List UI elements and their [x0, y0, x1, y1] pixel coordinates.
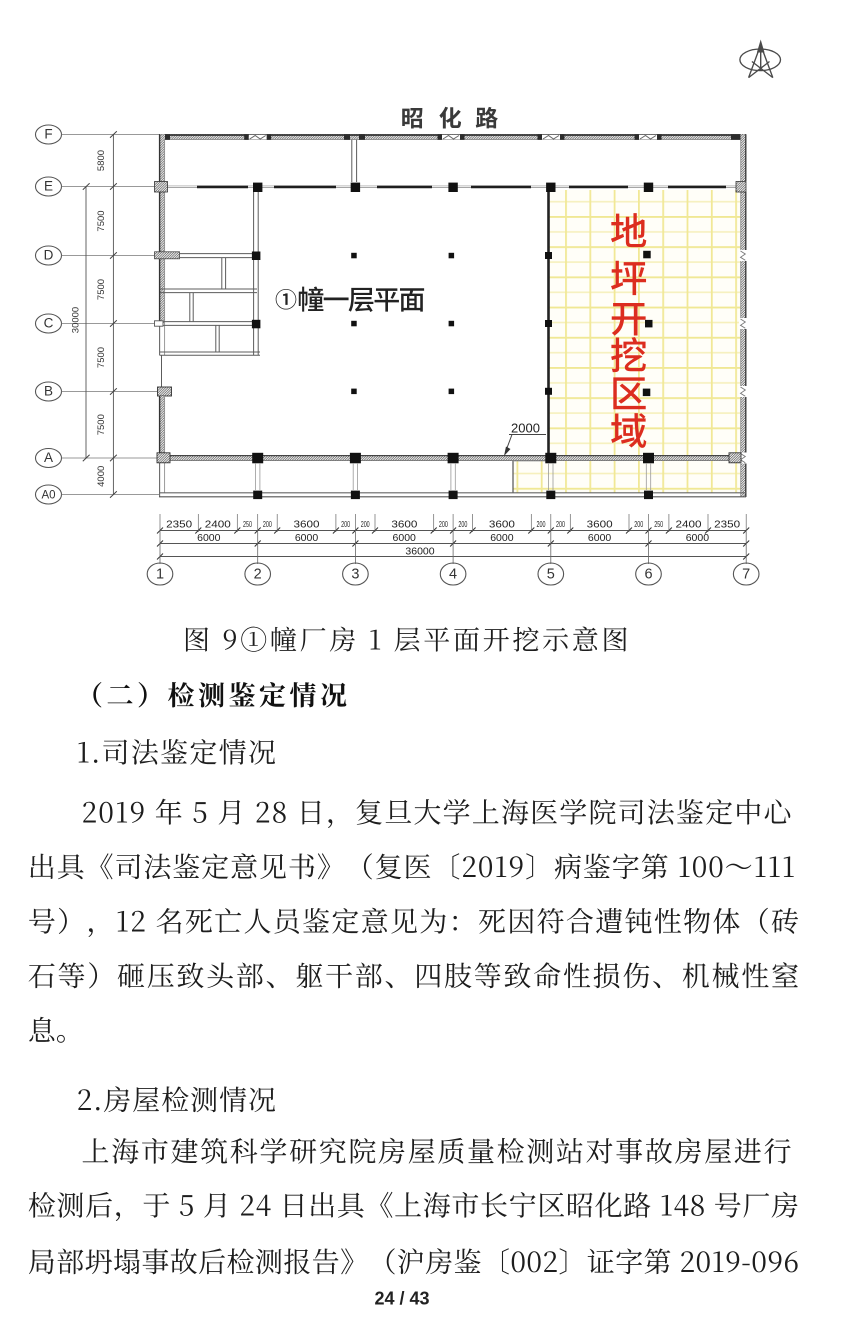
svg-text:7500: 7500 [96, 279, 107, 300]
svg-text:6: 6 [644, 567, 652, 583]
svg-text:7500: 7500 [96, 210, 107, 231]
svg-text:250: 250 [654, 520, 663, 529]
svg-text:D: D [44, 248, 54, 263]
svg-text:200: 200 [263, 520, 272, 529]
svg-text:2350: 2350 [714, 519, 740, 531]
svg-text:4000: 4000 [96, 466, 107, 487]
svg-text:200: 200 [361, 520, 370, 529]
svg-text:3: 3 [351, 567, 359, 583]
svg-text:7500: 7500 [96, 414, 107, 435]
svg-text:36000: 36000 [405, 546, 434, 558]
svg-text:3600: 3600 [489, 519, 515, 531]
svg-text:5: 5 [547, 567, 555, 583]
svg-text:2400: 2400 [676, 519, 702, 531]
svg-text:24 / 43: 24 / 43 [374, 1289, 429, 1309]
svg-text:B: B [44, 384, 53, 399]
svg-text:6000: 6000 [490, 532, 514, 544]
svg-text:3600: 3600 [587, 519, 613, 531]
svg-text:6000: 6000 [686, 532, 710, 544]
svg-text:A0: A0 [41, 490, 55, 502]
svg-text:F: F [44, 127, 52, 142]
svg-text:200: 200 [341, 520, 350, 529]
svg-text:200: 200 [537, 520, 546, 529]
svg-text:2: 2 [254, 567, 262, 583]
svg-text:6000: 6000 [197, 532, 221, 544]
svg-text:200: 200 [458, 520, 467, 529]
svg-text:4: 4 [449, 567, 457, 583]
svg-text:2400: 2400 [205, 519, 231, 531]
svg-text:250: 250 [243, 520, 252, 529]
svg-text:200: 200 [634, 520, 643, 529]
svg-text:3600: 3600 [391, 519, 417, 531]
svg-text:5800: 5800 [96, 150, 107, 171]
svg-text:200: 200 [439, 520, 448, 529]
svg-text:E: E [44, 179, 53, 194]
svg-text:30000: 30000 [71, 307, 82, 333]
svg-text:200: 200 [556, 520, 565, 529]
svg-text:1: 1 [156, 567, 164, 583]
svg-text:6000: 6000 [393, 532, 417, 544]
svg-text:7500: 7500 [96, 347, 107, 368]
svg-text:7: 7 [742, 567, 750, 583]
svg-text:A: A [44, 450, 53, 465]
svg-text:3600: 3600 [294, 519, 320, 531]
svg-text:C: C [44, 316, 54, 331]
svg-text:2350: 2350 [166, 519, 192, 531]
svg-text:6000: 6000 [588, 532, 612, 544]
svg-text:2000: 2000 [511, 421, 540, 436]
svg-text:6000: 6000 [295, 532, 319, 544]
